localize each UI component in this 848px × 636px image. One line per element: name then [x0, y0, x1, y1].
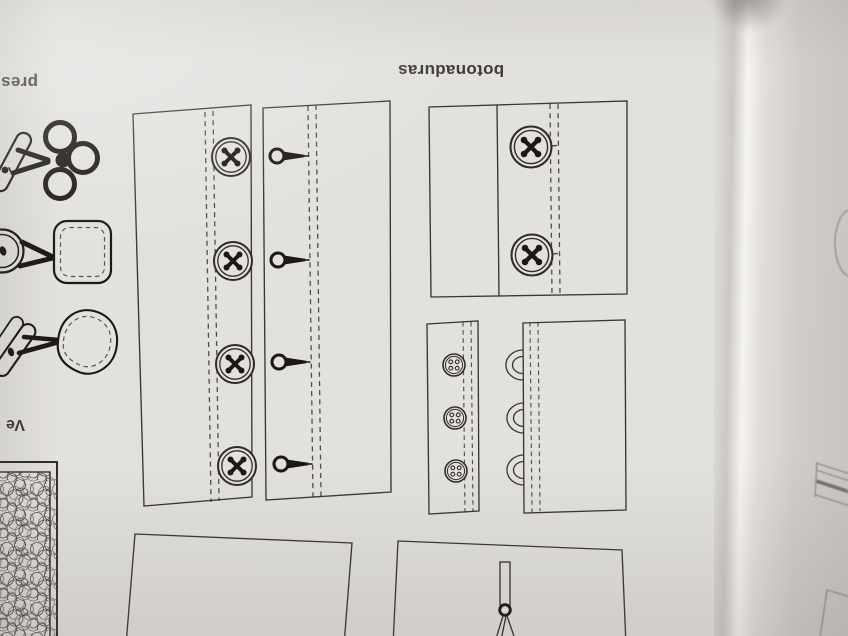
section-title-botonaduras: botonaduras — [394, 62, 508, 79]
word-fragment-top-left: pres — [0, 74, 38, 91]
book-page-photo: pres botonaduras Ve — [0, 0, 848, 636]
adjacent-page-fragments — [0, 0, 848, 636]
partial-zipper-fragment — [815, 462, 848, 506]
partial-rectangle-fragment — [819, 590, 848, 636]
word-fragment-mid-left: Ve — [0, 416, 25, 432]
partial-circle-fragment — [835, 209, 848, 277]
